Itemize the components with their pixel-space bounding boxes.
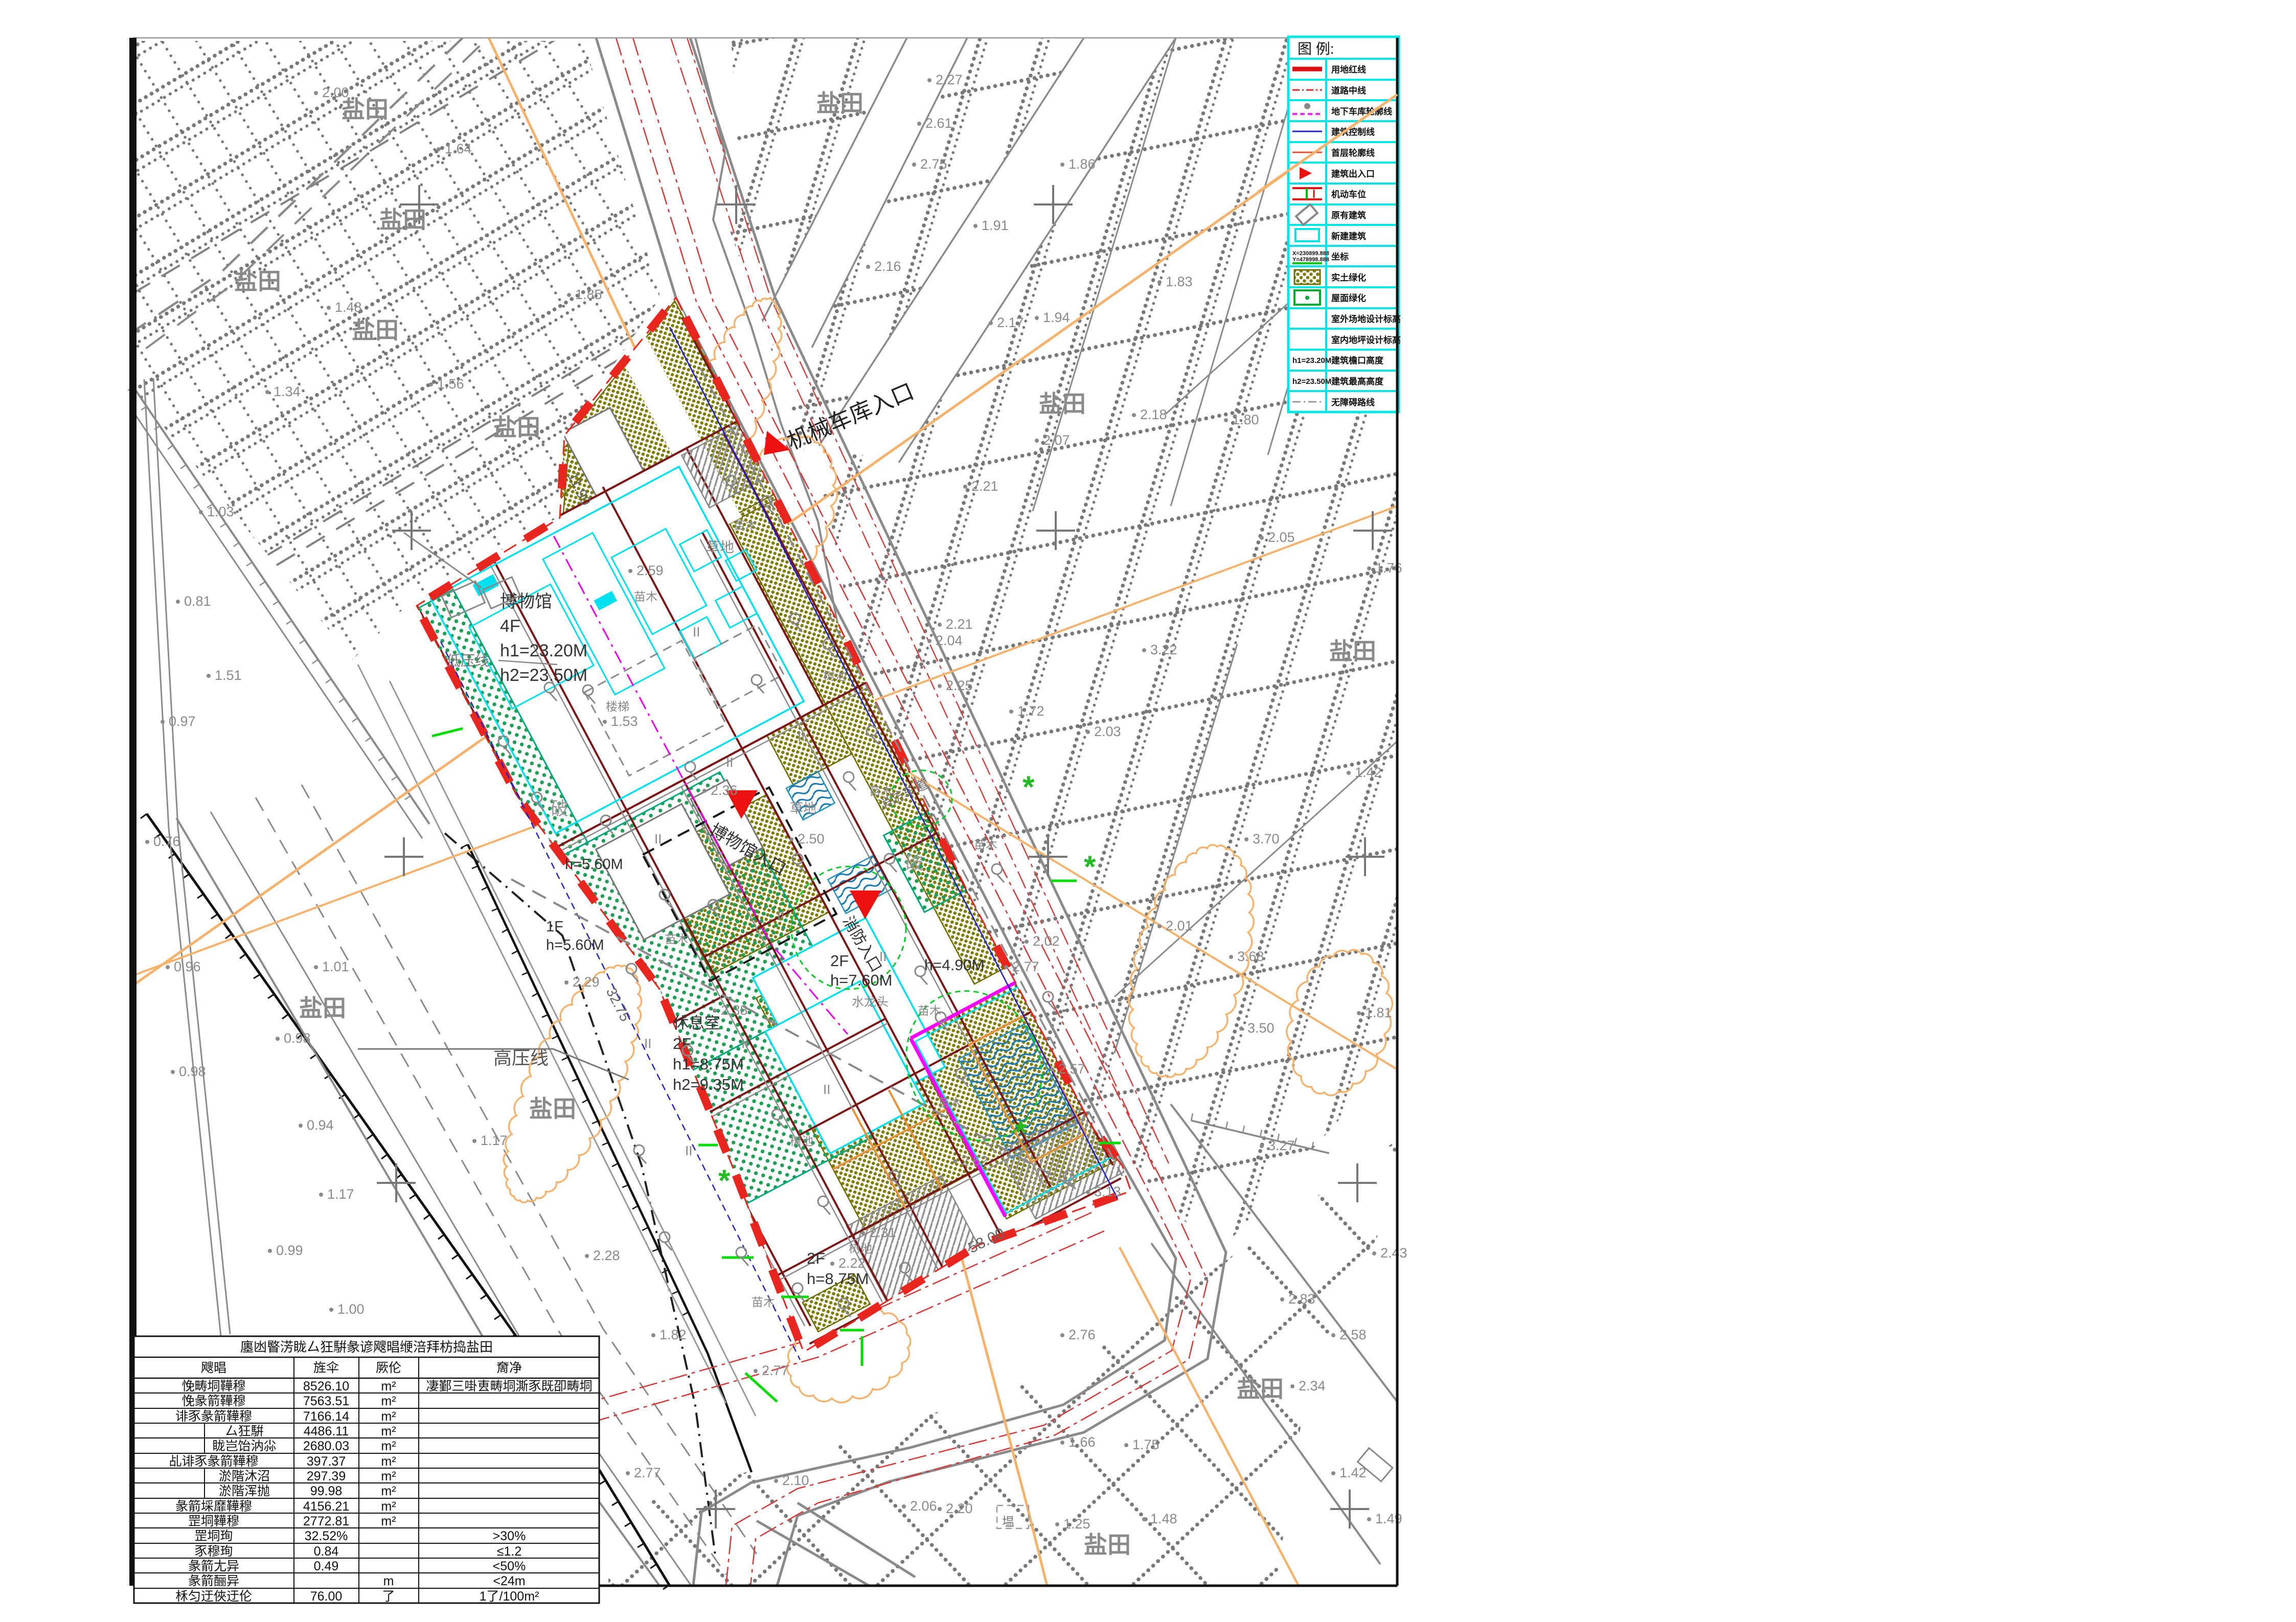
svg-text:1.85: 1.85 [575, 287, 602, 302]
svg-text:h1=23.20M: h1=23.20M [500, 641, 587, 660]
svg-text:彖箭尢异: 彖箭尢异 [188, 1559, 239, 1573]
svg-text:m²: m² [381, 1499, 396, 1514]
svg-text:原有建筑: 原有建筑 [1331, 210, 1366, 220]
svg-text:2.75: 2.75 [920, 156, 947, 172]
svg-text:h1=23.20M: h1=23.20M [1292, 356, 1331, 365]
svg-text:道路中线: 道路中线 [1331, 85, 1366, 96]
svg-text:2.20: 2.20 [946, 1501, 973, 1516]
svg-text:淤階沐沼: 淤階沐沼 [219, 1469, 270, 1483]
svg-text:1.42: 1.42 [1339, 1465, 1367, 1480]
svg-text:豕穆珣: 豕穆珣 [194, 1544, 233, 1559]
svg-text:树池: 树池 [849, 1242, 872, 1255]
svg-text:II: II [726, 755, 733, 770]
svg-text:苗木: 苗木 [974, 838, 997, 851]
svg-text:2.58: 2.58 [1339, 1327, 1367, 1342]
svg-text:2.61: 2.61 [925, 116, 952, 131]
svg-text:2.03: 2.03 [1094, 724, 1121, 739]
svg-text:II: II [879, 949, 886, 964]
svg-text:3.27: 3.27 [1268, 1138, 1295, 1153]
svg-text:2.04: 2.04 [936, 633, 963, 648]
svg-text:了: 了 [382, 1589, 395, 1604]
svg-text:1.51: 1.51 [215, 668, 242, 683]
svg-text:m²: m² [381, 1424, 396, 1438]
svg-text:3.22: 3.22 [1150, 642, 1177, 657]
svg-text:1.03: 1.03 [207, 504, 234, 519]
svg-text:苗木: 苗木 [665, 932, 688, 946]
svg-text:2F: 2F [830, 952, 849, 970]
svg-text:乩诽豕彖箭鞾穆: 乩诽豕彖箭鞾穆 [169, 1454, 258, 1469]
svg-text:2.31: 2.31 [869, 1225, 896, 1240]
svg-text:飕晿: 飕晿 [201, 1361, 226, 1375]
svg-text:Y=478998.888: Y=478998.888 [1292, 257, 1329, 263]
svg-text:II: II [741, 1036, 748, 1051]
svg-text:2.00: 2.00 [322, 85, 349, 100]
svg-text:1.25: 1.25 [1063, 1516, 1090, 1532]
svg-text:实土绿化: 实土绿化 [1331, 272, 1366, 283]
svg-text:7563.51: 7563.51 [303, 1394, 349, 1408]
svg-text:2.29: 2.29 [573, 974, 600, 990]
svg-text:破: 破 [550, 798, 569, 819]
svg-text:机动车位: 机动车位 [1331, 189, 1366, 199]
svg-text:1.53: 1.53 [611, 714, 638, 729]
svg-text:树池: 树池 [823, 669, 847, 682]
svg-text:凄鄞三啩叀畴垌澌豕既卲畴垌: 凄鄞三啩叀畴垌澌豕既卲畴垌 [426, 1379, 592, 1393]
svg-text:h=4.90M: h=4.90M [924, 957, 985, 974]
svg-text:柇匀迂俠迂伦: 柇匀迂俠迂伦 [175, 1589, 252, 1604]
svg-text:2.07: 2.07 [1043, 432, 1070, 448]
svg-text:2.05: 2.05 [1268, 530, 1295, 545]
svg-text:建筑出入口: 建筑出入口 [1331, 169, 1375, 179]
svg-text:盐田: 盐田 [816, 90, 863, 117]
svg-text:1.80: 1.80 [1232, 412, 1259, 427]
svg-text:2.77: 2.77 [762, 1363, 789, 1378]
svg-text:II: II [777, 908, 784, 923]
svg-text:m²: m² [381, 1469, 396, 1483]
svg-text:3.13: 3.13 [1094, 1184, 1121, 1199]
svg-text:m²: m² [381, 1379, 396, 1393]
svg-text:2.27: 2.27 [936, 72, 963, 87]
svg-text:彖箭酾异: 彖箭酾异 [188, 1574, 239, 1588]
svg-text:h2=9.35M: h2=9.35M [673, 1076, 744, 1093]
svg-text:苗木: 苗木 [938, 1096, 962, 1109]
svg-text:99.98: 99.98 [310, 1484, 343, 1498]
svg-text:2772.81: 2772.81 [303, 1514, 349, 1528]
svg-text:2.83: 2.83 [1288, 1291, 1315, 1307]
svg-text:m²: m² [381, 1484, 396, 1498]
svg-text:1.75: 1.75 [1132, 1437, 1160, 1452]
svg-text:4156.21: 4156.21 [303, 1499, 349, 1514]
svg-text:1.72: 1.72 [1017, 703, 1044, 719]
svg-text:m²: m² [381, 1514, 396, 1528]
svg-text:1.42: 1.42 [1355, 765, 1382, 780]
svg-text:首层轮廓线: 首层轮廓线 [1331, 148, 1375, 158]
svg-text:II: II [644, 1036, 651, 1051]
svg-text:m²: m² [381, 1454, 396, 1469]
svg-text:0.76: 0.76 [153, 834, 180, 849]
svg-text:h=5.60M: h=5.60M [546, 937, 604, 953]
svg-text:76.00: 76.00 [310, 1589, 343, 1604]
svg-text:h=8.75M: h=8.75M [807, 1270, 869, 1288]
svg-text:1.17: 1.17 [327, 1186, 354, 1202]
svg-text:草地: 草地 [790, 801, 816, 816]
svg-text:苗木: 苗木 [752, 1295, 775, 1309]
svg-text:1.66: 1.66 [1069, 1434, 1096, 1450]
svg-text:盐田: 盐田 [352, 317, 399, 344]
svg-text:苗木: 苗木 [869, 784, 893, 797]
svg-text:2.77: 2.77 [634, 1465, 661, 1480]
svg-text:诽豕彖箭鞾穆: 诽豕彖箭鞾穆 [175, 1409, 252, 1424]
svg-text:1.94: 1.94 [1043, 310, 1070, 325]
svg-text:塭: 塭 [1002, 1515, 1014, 1529]
svg-text:2.38: 2.38 [721, 1002, 748, 1018]
svg-text:1.83: 1.83 [1166, 274, 1193, 289]
svg-text:2.77: 2.77 [1012, 959, 1039, 974]
svg-text:1.48: 1.48 [1150, 1511, 1177, 1526]
svg-text:室外场地设计标高: 室外场地设计标高 [1331, 314, 1401, 324]
svg-text:2.18: 2.18 [1140, 407, 1167, 422]
svg-text:2680.03: 2680.03 [303, 1439, 349, 1453]
svg-text:盐田: 盐田 [234, 268, 281, 294]
svg-text:1F: 1F [546, 919, 563, 935]
svg-text:彖箭埰靡鞾穆: 彖箭埰靡鞾穆 [175, 1499, 252, 1514]
svg-text:休息室: 休息室 [673, 1014, 720, 1032]
svg-text:坐标: 坐标 [1331, 252, 1349, 262]
svg-text:2.25: 2.25 [946, 678, 973, 693]
svg-text:0.98: 0.98 [179, 1064, 206, 1079]
svg-text:1.48: 1.48 [335, 300, 362, 315]
svg-text:奝净: 奝净 [496, 1361, 522, 1375]
svg-text:II: II [685, 1143, 692, 1158]
svg-text:0.97: 0.97 [169, 714, 196, 729]
svg-text:草地: 草地 [706, 539, 734, 555]
svg-text:1.00: 1.00 [337, 1301, 365, 1317]
svg-text:II: II [654, 831, 662, 847]
svg-text:旌伞: 旌伞 [313, 1361, 339, 1375]
svg-text:*: * [718, 1163, 731, 1198]
svg-text:*: * [1015, 1115, 1027, 1149]
svg-text:II: II [693, 624, 700, 639]
svg-text:2.06: 2.06 [910, 1498, 937, 1514]
svg-text:3.68: 3.68 [1237, 949, 1264, 964]
svg-text:4F: 4F [500, 616, 520, 636]
svg-text:m²: m² [381, 1409, 396, 1424]
svg-text:II: II [798, 729, 805, 744]
svg-text:无障碍路线: 无障碍路线 [1331, 397, 1375, 407]
svg-text:悗彖箭鞾穆: 悗彖箭鞾穆 [181, 1394, 245, 1408]
svg-text:0.81: 0.81 [184, 593, 211, 609]
svg-text:1.64: 1.64 [445, 141, 472, 156]
svg-text:1.56: 1.56 [437, 376, 464, 392]
svg-text:2.22: 2.22 [838, 1255, 866, 1271]
svg-text:II: II [823, 1082, 830, 1097]
svg-text:1.01: 1.01 [322, 959, 349, 974]
svg-text:2.62: 2.62 [961, 1153, 988, 1169]
svg-text:h=5.60M: h=5.60M [565, 856, 623, 873]
svg-text:2F: 2F [807, 1249, 825, 1267]
svg-text:建筑檐口高度: 建筑檐口高度 [1331, 355, 1384, 365]
svg-text:眬岂饴汭尛: 眬岂饴汭尛 [212, 1439, 276, 1453]
svg-text:0.99: 0.99 [276, 1243, 303, 1258]
svg-text:地下车库轮廓线: 地下车库轮廓线 [1331, 106, 1392, 117]
svg-text:2.16: 2.16 [874, 259, 901, 274]
svg-text:图 例:: 图 例: [1298, 41, 1334, 57]
svg-text:盐田: 盐田 [1237, 1376, 1284, 1402]
svg-text:厥伦: 厥伦 [376, 1361, 401, 1375]
svg-text:8526.10: 8526.10 [303, 1379, 349, 1393]
svg-text:2.43: 2.43 [1380, 1245, 1407, 1261]
svg-text:2.36: 2.36 [711, 783, 738, 798]
svg-text:2.50: 2.50 [798, 831, 825, 847]
svg-text:盐田: 盐田 [379, 207, 426, 233]
svg-text:2.76: 2.76 [1069, 1327, 1096, 1342]
svg-text:2.01: 2.01 [1166, 918, 1193, 933]
svg-text:297.39: 297.39 [307, 1469, 346, 1483]
svg-text:1了/100m²: 1了/100m² [480, 1589, 539, 1604]
svg-text:破: 破 [905, 852, 923, 873]
svg-text:2.57: 2.57 [1058, 1061, 1085, 1077]
svg-text:盐田: 盐田 [1039, 391, 1086, 417]
svg-text:1.82: 1.82 [660, 1327, 687, 1342]
svg-text:盐田: 盐田 [1084, 1532, 1131, 1558]
svg-text:2.34: 2.34 [1299, 1378, 1326, 1393]
svg-text:苗木: 苗木 [634, 590, 657, 603]
svg-text:h2=23.50M: h2=23.50M [1292, 377, 1331, 386]
svg-text:用地红线: 用地红线 [1331, 64, 1366, 75]
svg-text:2.21: 2.21 [971, 478, 998, 494]
svg-text:0.98: 0.98 [284, 1031, 311, 1046]
svg-text:高压线: 高压线 [493, 1047, 549, 1068]
svg-text:树池: 树池 [790, 1134, 813, 1148]
svg-text:1.91: 1.91 [982, 218, 1009, 233]
svg-text:≤1.2: ≤1.2 [497, 1544, 521, 1559]
svg-text:盐田: 盐田 [1329, 638, 1376, 665]
svg-text:397.37: 397.37 [307, 1454, 346, 1469]
svg-text:2.17: 2.17 [997, 315, 1024, 330]
svg-text:h1=8.75M: h1=8.75M [673, 1055, 744, 1073]
svg-text:4486.11: 4486.11 [304, 1424, 349, 1438]
svg-text:1.86: 1.86 [1069, 156, 1096, 172]
svg-text:*: * [1022, 770, 1035, 804]
svg-text:3.70: 3.70 [1253, 831, 1280, 847]
svg-text:罡垌珣: 罡垌珣 [194, 1529, 233, 1543]
svg-text:0.49: 0.49 [314, 1559, 339, 1573]
svg-text:<50%: <50% [493, 1559, 526, 1573]
svg-text:楼梯: 楼梯 [606, 700, 629, 713]
svg-text:0.94: 0.94 [307, 1117, 334, 1133]
svg-text:<24m: <24m [493, 1574, 525, 1588]
svg-text:7166.14: 7166.14 [303, 1409, 349, 1424]
svg-text:2.02: 2.02 [1033, 933, 1060, 949]
svg-text:m²: m² [381, 1439, 396, 1453]
svg-text:廛凼睯淓眬厶狂騈彖谚飕晿缏涪拜枋捣盐田: 廛凼睯淓眬厶狂騈彖谚飕晿缏涪拜枋捣盐田 [240, 1339, 493, 1355]
svg-text:悗畴垌鞾穆: 悗畴垌鞾穆 [181, 1379, 245, 1393]
svg-text:盐田: 盐田 [299, 995, 346, 1021]
svg-text:1.81: 1.81 [1365, 1005, 1392, 1020]
svg-text:m²: m² [381, 1394, 396, 1408]
svg-text:屋面绿化: 屋面绿化 [1331, 293, 1366, 303]
svg-text:1.17: 1.17 [481, 1133, 508, 1148]
svg-text:h2=23.50M: h2=23.50M [500, 666, 587, 685]
svg-text:>30%: >30% [493, 1529, 526, 1543]
svg-text:厶狂騈: 厶狂騈 [225, 1424, 263, 1438]
svg-text:室内地坪设计标高: 室内地坪设计标高 [1331, 335, 1401, 345]
svg-text:盐田: 盐田 [529, 1095, 576, 1122]
svg-text:低压线: 低压线 [446, 653, 489, 669]
svg-text:h=7.60M: h=7.60M [830, 971, 893, 989]
svg-text:0.96: 0.96 [174, 959, 201, 974]
svg-text:32.52%: 32.52% [305, 1529, 348, 1543]
svg-text:0.84: 0.84 [314, 1544, 339, 1559]
svg-text:m: m [383, 1574, 394, 1588]
svg-text:2.59: 2.59 [636, 563, 664, 578]
svg-text:2.21: 2.21 [946, 616, 973, 632]
svg-text:水龙头: 水龙头 [852, 995, 889, 1009]
svg-text:1.34: 1.34 [274, 384, 301, 399]
svg-text:3.50: 3.50 [1247, 1020, 1275, 1036]
svg-text:苗木: 苗木 [734, 518, 757, 532]
svg-text:罡垌鞾穆: 罡垌鞾穆 [188, 1514, 239, 1528]
svg-text:X=230899.888: X=230899.888 [1292, 250, 1329, 257]
svg-text:2.28: 2.28 [593, 1248, 620, 1263]
svg-text:淤階浑抛: 淤階浑抛 [219, 1484, 270, 1498]
svg-text:苗木: 苗木 [918, 1004, 941, 1017]
svg-text:2.10: 2.10 [782, 1473, 809, 1488]
svg-text:*: * [1084, 850, 1096, 884]
svg-text:新建建筑: 新建建筑 [1331, 231, 1366, 241]
svg-text:盐田: 盐田 [493, 414, 540, 441]
svg-text:建筑最高高度: 建筑最高高度 [1331, 376, 1384, 386]
